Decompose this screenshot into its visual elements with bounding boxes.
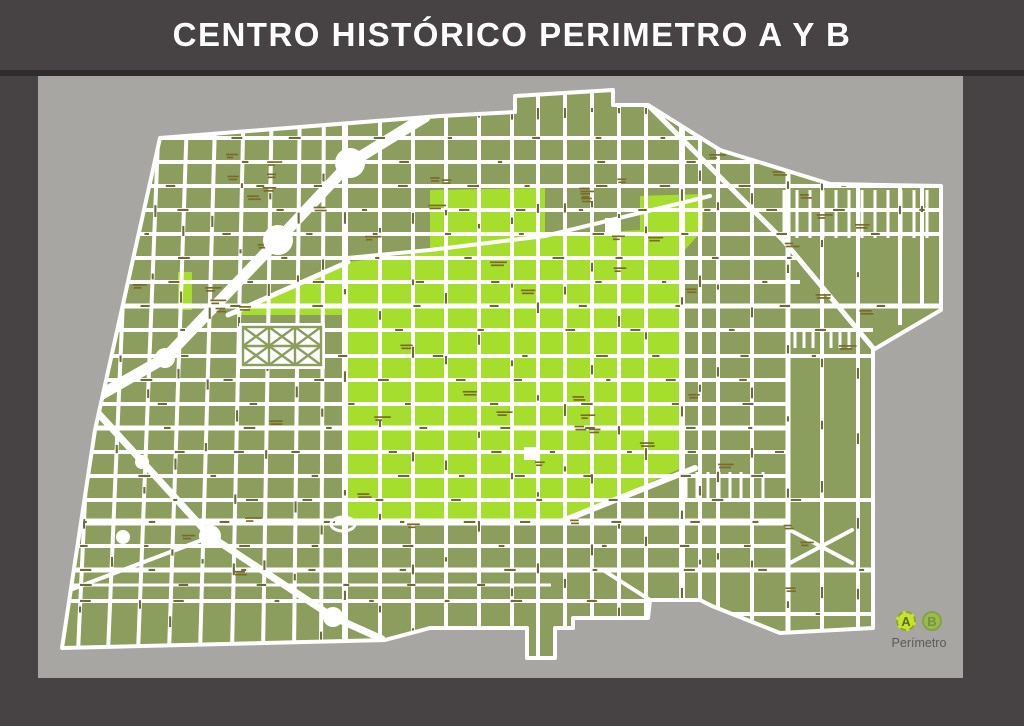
header: CENTRO HISTÓRICO PERIMETRO A Y B xyxy=(0,0,1024,70)
legend-badges: A B xyxy=(888,611,950,631)
header-separator xyxy=(0,70,1024,76)
perimeter-legend: A B Perímetro xyxy=(888,611,950,650)
page-title: CENTRO HISTÓRICO PERIMETRO A Y B xyxy=(173,16,852,54)
centro-historico-map xyxy=(0,0,1024,726)
plaza-block xyxy=(524,447,536,460)
perimeter-a-badge: A xyxy=(896,611,916,631)
perimeter-b-badge: B xyxy=(922,611,942,631)
map-layers xyxy=(62,88,941,660)
legend-caption: Perímetro xyxy=(888,636,950,650)
alameda-park xyxy=(239,323,325,369)
plaza-block xyxy=(605,218,621,232)
